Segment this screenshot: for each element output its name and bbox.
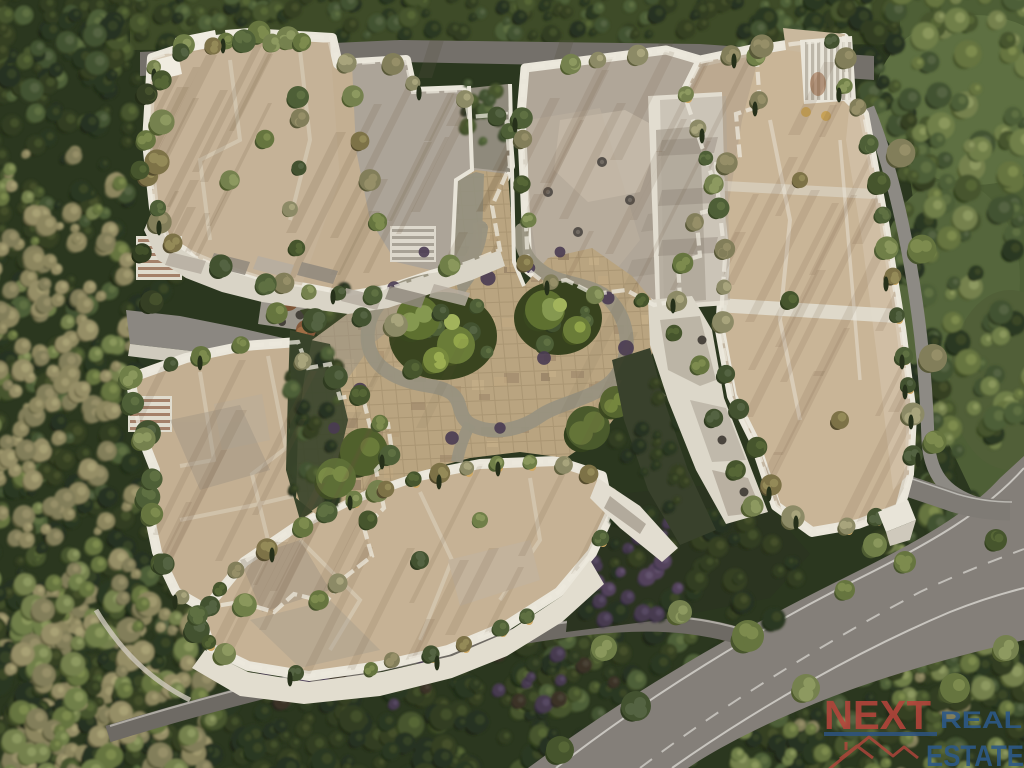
svg-text:ESTATE: ESTATE (926, 740, 1024, 768)
svg-text:REAL: REAL (940, 707, 1022, 734)
svg-text:NEXT: NEXT (824, 692, 931, 738)
